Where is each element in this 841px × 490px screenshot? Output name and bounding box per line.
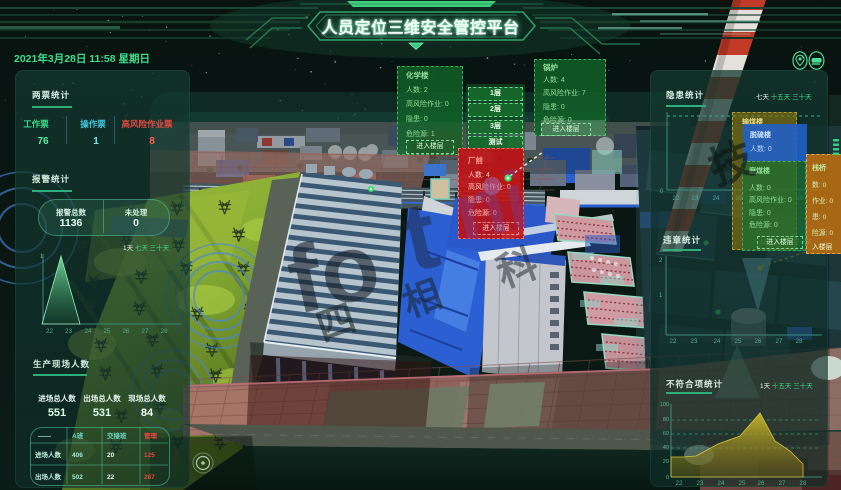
svg-text:——: —— [38,433,52,440]
svg-text:27: 27 [776,338,783,345]
svg-text:23: 23 [697,480,704,487]
svg-text:24: 24 [714,338,721,345]
svg-text:出场人数: 出场人数 [35,472,62,481]
svg-text:25: 25 [739,480,746,487]
svg-text:20: 20 [663,459,669,465]
svg-text:22: 22 [673,195,680,202]
svg-text:28: 28 [800,480,807,487]
svg-text:28: 28 [161,328,168,335]
svg-text:23: 23 [692,195,699,202]
svg-text:0: 0 [660,189,664,195]
svg-text:管理: 管理 [144,431,158,440]
svg-text:406: 406 [72,452,83,459]
svg-text:80: 80 [663,417,669,423]
svg-text:60: 60 [663,431,669,437]
svg-text:26: 26 [755,338,762,345]
svg-text:26: 26 [122,328,129,335]
svg-text:22: 22 [107,474,115,481]
svg-text:25: 25 [103,328,110,335]
svg-text:2: 2 [659,258,663,264]
svg-text:28: 28 [796,338,803,345]
svg-text:进场人数: 进场人数 [35,450,62,459]
svg-text:0: 0 [666,475,669,481]
svg-text:A班: A班 [72,431,84,440]
svg-text:24: 24 [713,195,720,202]
svg-text:24: 24 [85,328,92,335]
svg-text:1: 1 [659,293,663,299]
svg-text:22: 22 [676,480,683,487]
svg-text:22: 22 [670,338,677,345]
svg-text:40: 40 [663,445,669,451]
svg-text:23: 23 [65,328,72,335]
svg-text:502: 502 [72,474,83,481]
svg-text:27: 27 [779,480,786,487]
svg-text:26: 26 [758,480,765,487]
svg-text:27: 27 [142,328,149,335]
svg-text:25: 25 [735,338,742,345]
svg-text:100: 100 [660,402,669,408]
svg-text:125: 125 [144,452,155,459]
svg-text:24: 24 [718,480,725,487]
svg-text:交接班: 交接班 [107,431,127,440]
svg-text:20: 20 [107,452,115,459]
svg-text:23: 23 [691,338,698,345]
svg-text:287: 287 [144,474,155,481]
svg-text:22: 22 [46,328,53,335]
